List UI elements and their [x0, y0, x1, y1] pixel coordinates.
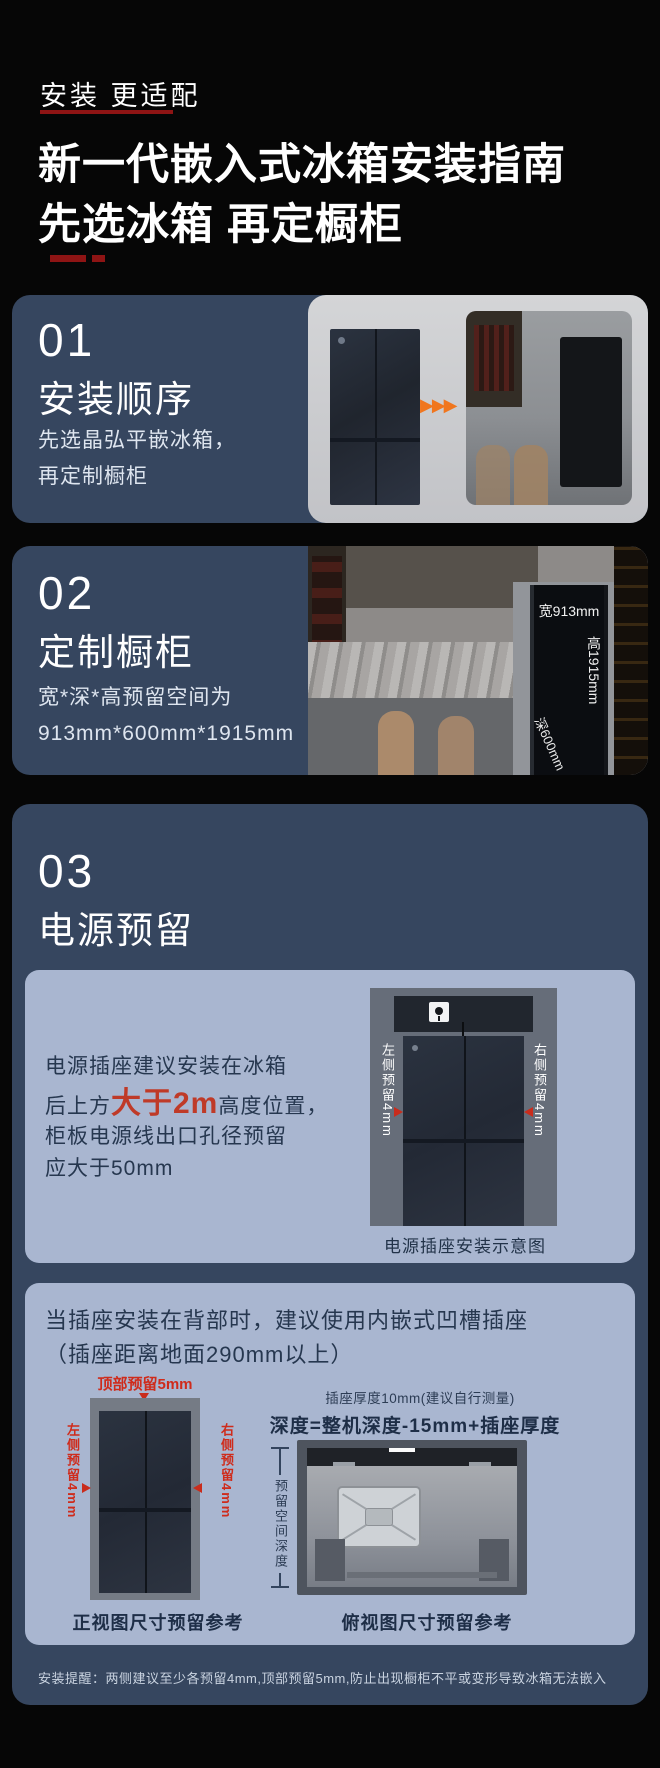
text-post: 高度位置，: [218, 1095, 328, 1118]
plate-center: [365, 1508, 393, 1526]
recessed-socket-panel: 当插座安装在背部时，建议使用内嵌式凹槽插座 （插座距离地面290mm以上） 顶部…: [25, 1283, 635, 1645]
dimension-cap-bottom: [271, 1586, 289, 1588]
power-cord: [462, 1022, 464, 1036]
panel1-text-line: 后上方大于2m高度位置，: [45, 1078, 328, 1122]
arrow-right-icon: [394, 1107, 403, 1117]
marble-backsplash: [308, 642, 530, 700]
top-view-caption: 俯视图尺寸预留参考: [312, 1609, 542, 1635]
fridge-door-split: [464, 1036, 466, 1226]
section-number: 02: [38, 566, 95, 620]
dark-doorway: [560, 337, 622, 487]
arrow-right-icon: [82, 1483, 91, 1493]
card-power-reserve: 03 电源预留 电源插座建议安装在冰箱 后上方大于2m高度位置， 柜板电源线出口…: [12, 804, 648, 1705]
hinge-bracket: [315, 1539, 345, 1581]
body-line: 宽*深*高预留空间为: [38, 680, 294, 716]
forward-arrows-icon: ▶▶▶: [420, 395, 456, 416]
brand-logo-icon: [338, 337, 345, 344]
fridge-door-split: [375, 329, 377, 505]
cabinet-space-photo: 宽913mm 高1915mm 深600mm: [308, 546, 648, 775]
text-emphasis-red: 大于2m: [111, 1087, 218, 1120]
diagram-caption: 电源插座安装示意图: [355, 1232, 575, 1257]
front-view-caption: 正视图尺寸预留参考: [48, 1609, 268, 1635]
brand-logo-icon: [412, 1045, 418, 1051]
install-reminder-note: 安装提醒：两侧建议至少各预留4mm,顶部预留5mm,防止出现橱柜不平或变形导致冰…: [38, 1668, 607, 1687]
depth-dimension-label: 预留空间深度: [271, 1475, 290, 1573]
left-gap-label: 左侧预留4mm: [378, 1043, 397, 1138]
section-title: 安装顺序: [38, 369, 194, 423]
fridge-top-surface: [307, 1466, 517, 1587]
title-accent-dash-short: [92, 255, 105, 262]
socket-install-diagram: 左侧预留4mm 右侧预留4mm: [370, 988, 557, 1226]
fridge-image: [403, 1036, 524, 1226]
fridge-image: [330, 329, 420, 505]
section-title: 电源预留: [38, 900, 194, 954]
bar-stool: [476, 445, 510, 505]
dimension-cap-top: [271, 1447, 289, 1449]
left-gap-label: 左侧预留4mm: [63, 1423, 82, 1519]
section-body: 宽*深*高预留空间为 913mm*600mm*1915mm: [38, 680, 294, 752]
bar-stool: [438, 716, 474, 775]
front-view-diagram: [90, 1398, 200, 1600]
socket-pin: [438, 1016, 440, 1021]
section-number: 03: [38, 844, 95, 898]
section-body: 先选晶弘平嵌冰箱， 再定制橱柜: [38, 423, 236, 495]
fridge-handle-bar: [99, 1508, 191, 1512]
eyebrow-label: 安装 更适配: [40, 74, 201, 113]
niche-height-label: 高1915mm: [584, 636, 604, 704]
panel1-text-line: 应大于50mm: [45, 1152, 173, 1182]
panel2-intro-line: 当插座安装在背部时，建议使用内嵌式凹槽插座: [45, 1303, 528, 1335]
arrow-left-icon: [193, 1483, 202, 1493]
wine-display-cabinet: [614, 546, 648, 775]
panel2-intro-line: （插座距离地面290mm以上）: [45, 1337, 353, 1369]
wine-bottles: [474, 325, 514, 391]
power-socket-icon: [429, 1002, 449, 1022]
page-title-line1: 新一代嵌入式冰箱安装指南: [38, 130, 566, 192]
section-number: 01: [38, 313, 95, 367]
body-line: 再定制橱柜: [38, 459, 236, 495]
bar-stool: [514, 445, 548, 505]
fridge-door-split: [145, 1411, 147, 1593]
body-line: 先选晶弘平嵌冰箱，: [38, 423, 236, 459]
panel1-text-line: 柜板电源线出口孔径预留: [45, 1120, 287, 1150]
card-custom-cabinet: 02 定制橱柜 宽*深*高预留空间为 913mm*600mm*1915mm 宽9…: [12, 546, 648, 775]
right-gap-label: 右侧预留4mm: [217, 1423, 236, 1519]
bottom-rail: [347, 1572, 497, 1578]
panel1-text-line: 电源插座建议安装在冰箱: [45, 1050, 287, 1080]
socket-thickness-note: 插座厚度10mm(建议自行测量): [310, 1387, 530, 1407]
kitchen-counter: [308, 698, 530, 775]
socket-hole: [435, 1007, 443, 1015]
title-accent-dash-long: [50, 255, 86, 262]
fridge-handle-bar: [330, 438, 420, 442]
page-title-line2: 先选冰箱 再定橱柜: [38, 190, 403, 252]
card-install-order: 01 安装顺序 先选晶弘平嵌冰箱， 再定制橱柜 ▶▶▶: [12, 295, 648, 523]
fridge-handle-bar: [403, 1139, 524, 1143]
section-title: 定制橱柜: [38, 622, 194, 676]
text-pre: 后上方: [45, 1095, 111, 1118]
kitchen-photo: [466, 311, 632, 505]
top-gap-label: 顶部预留5mm: [65, 1373, 225, 1394]
rear-notch: [389, 1448, 415, 1452]
top-view-diagram: [297, 1440, 527, 1595]
bar-stool: [378, 711, 414, 775]
body-line: 913mm*600mm*1915mm: [38, 716, 294, 752]
compressor-plate: [337, 1486, 421, 1548]
right-gap-label: 右侧预留4mm: [530, 1043, 549, 1138]
eyebrow-underline: [40, 110, 173, 114]
niche-width-label: 宽913mm: [530, 601, 608, 621]
arrow-left-icon: [524, 1107, 533, 1117]
socket-placement-panel: 电源插座建议安装在冰箱 后上方大于2m高度位置， 柜板电源线出口孔径预留 应大于…: [25, 970, 635, 1263]
install-order-illustration: ▶▶▶: [308, 295, 648, 523]
page: 安装 更适配 新一代嵌入式冰箱安装指南 先选冰箱 再定橱柜 01 安装顺序 先选…: [0, 0, 660, 1768]
